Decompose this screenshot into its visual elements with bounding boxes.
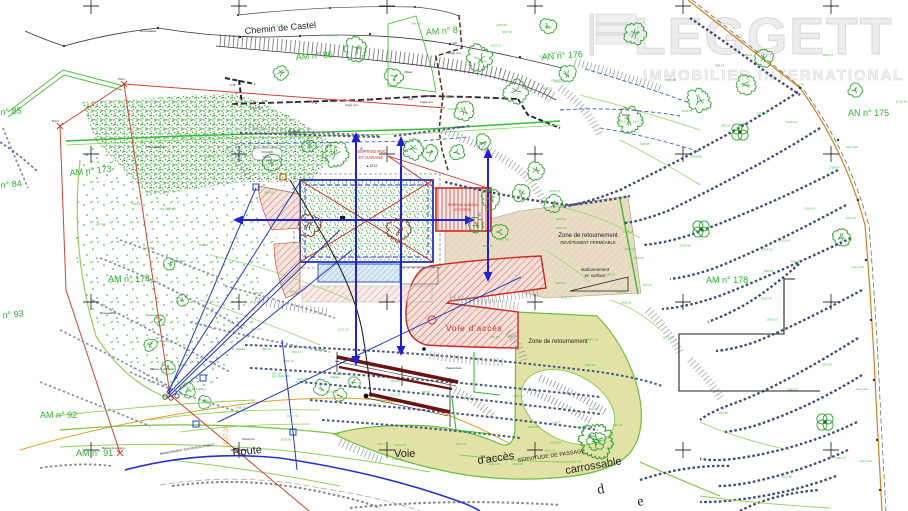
svg-text:Point: Point bbox=[52, 119, 59, 123]
svg-text:1002.04: 1002.04 bbox=[584, 363, 595, 367]
svg-text:Axe route: Axe route bbox=[852, 265, 864, 269]
svg-text:Cuprès: Cuprès bbox=[196, 387, 206, 391]
svg-text:Olivier: Olivier bbox=[588, 434, 597, 438]
svg-text:Cuprès: Cuprès bbox=[178, 363, 188, 367]
svg-text:Axe route: Axe route bbox=[860, 459, 872, 463]
svg-text:17.80: 17.80 bbox=[290, 130, 298, 134]
svg-text:1010.28: 1010.28 bbox=[489, 462, 500, 466]
svg-text:Angle mur: Angle mur bbox=[448, 51, 461, 55]
svg-text:COULOIR: COULOIR bbox=[261, 150, 273, 154]
svg-text:994.93: 994.93 bbox=[542, 87, 552, 91]
svg-text:AN n° 175: AN n° 175 bbox=[848, 108, 889, 118]
svg-text:Axe route: Axe route bbox=[856, 387, 868, 391]
svg-text:1002.85: 1002.85 bbox=[570, 460, 581, 464]
svg-text:1007.01: 1007.01 bbox=[327, 34, 338, 38]
svg-text:992.49: 992.49 bbox=[421, 390, 431, 394]
svg-text:1011.96: 1011.96 bbox=[633, 256, 644, 260]
svg-text:1018.43: 1018.43 bbox=[804, 206, 815, 210]
svg-text:1007.08: 1007.08 bbox=[326, 390, 337, 394]
svg-text:1006.29: 1006.29 bbox=[574, 425, 585, 429]
svg-text:1003.29: 1003.29 bbox=[623, 230, 634, 234]
svg-text:Broussailles: Broussailles bbox=[140, 29, 157, 33]
svg-text:1002.97: 1002.97 bbox=[235, 405, 246, 409]
svg-text:1001.55: 1001.55 bbox=[682, 109, 693, 113]
svg-text:9.55: 9.55 bbox=[262, 99, 268, 103]
svg-text:EMPRISE RDC: EMPRISE RDC bbox=[357, 149, 386, 154]
svg-text:1002.15: 1002.15 bbox=[338, 328, 349, 332]
svg-text:AM n° 92: AM n° 92 bbox=[40, 410, 77, 420]
svg-text:1009.39: 1009.39 bbox=[680, 244, 691, 248]
svg-text:993.00: 993.00 bbox=[391, 379, 401, 383]
svg-text:995.97: 995.97 bbox=[618, 120, 628, 124]
svg-text:Angle mur: Angle mur bbox=[250, 106, 263, 110]
svg-text:1017.77: 1017.77 bbox=[377, 442, 388, 446]
svg-text:1003.90: 1003.90 bbox=[279, 374, 290, 378]
svg-text:Cuprès: Cuprès bbox=[160, 339, 170, 343]
svg-text:1012.59: 1012.59 bbox=[252, 291, 263, 295]
svg-text:991.09: 991.09 bbox=[616, 290, 626, 294]
svg-text:1018.18: 1018.18 bbox=[896, 99, 907, 103]
svg-text:996.58: 996.58 bbox=[167, 207, 177, 211]
svg-text:7.05: 7.05 bbox=[368, 98, 374, 102]
svg-text:1006.87: 1006.87 bbox=[829, 166, 840, 170]
svg-text:993.59: 993.59 bbox=[719, 411, 729, 415]
svg-text:998.40: 998.40 bbox=[613, 423, 623, 427]
svg-text:999.11: 999.11 bbox=[791, 260, 800, 264]
svg-text:1008.10: 1008.10 bbox=[131, 202, 142, 206]
svg-text:1011.03: 1011.03 bbox=[483, 244, 494, 248]
svg-text:7.11: 7.11 bbox=[312, 101, 318, 105]
svg-text:1013.84: 1013.84 bbox=[781, 474, 792, 478]
svg-text:1005.03: 1005.03 bbox=[556, 226, 567, 230]
svg-text:5.18: 5.18 bbox=[230, 83, 236, 87]
svg-text:1013.97: 1013.97 bbox=[496, 23, 507, 27]
svg-text:1005.32: 1005.32 bbox=[204, 154, 215, 158]
svg-text:1013.38: 1013.38 bbox=[297, 377, 308, 381]
svg-text:en surface: en surface bbox=[584, 273, 606, 278]
svg-text:1014.14: 1014.14 bbox=[756, 111, 767, 115]
svg-text:992.12: 992.12 bbox=[371, 403, 381, 407]
svg-text:Zone de retournement: Zone de retournement bbox=[558, 233, 618, 239]
svg-text:991.14: 991.14 bbox=[643, 283, 653, 287]
svg-text:1013.76: 1013.76 bbox=[455, 442, 466, 446]
svg-text:Axe route: Axe route bbox=[846, 145, 858, 149]
svg-text:999.24: 999.24 bbox=[715, 64, 725, 68]
svg-text:stationnement: stationnement bbox=[581, 267, 610, 272]
svg-text:998.95: 998.95 bbox=[640, 142, 650, 146]
svg-text:1004.85: 1004.85 bbox=[528, 425, 539, 429]
svg-text:996.58: 996.58 bbox=[262, 347, 272, 351]
svg-text:Olivier: Olivier bbox=[404, 70, 413, 74]
svg-text:998.69: 998.69 bbox=[764, 269, 774, 273]
svg-text:1010.16: 1010.16 bbox=[845, 216, 856, 220]
svg-text:Point: Point bbox=[118, 77, 125, 81]
svg-text:1004.95: 1004.95 bbox=[665, 78, 676, 82]
svg-text:992.63: 992.63 bbox=[721, 124, 731, 128]
svg-text:1005.47: 1005.47 bbox=[551, 420, 562, 424]
svg-text:1012.69: 1012.69 bbox=[448, 107, 459, 111]
svg-text:991.95: 991.95 bbox=[490, 335, 500, 339]
svg-text:1000.56: 1000.56 bbox=[333, 372, 344, 376]
svg-text:1007.91: 1007.91 bbox=[513, 394, 524, 398]
svg-text:Cuprès: Cuprès bbox=[148, 313, 158, 317]
svg-text:990.41: 990.41 bbox=[411, 21, 421, 25]
svg-text:1005.88: 1005.88 bbox=[779, 239, 790, 243]
svg-text:Cuprès: Cuprès bbox=[176, 259, 186, 263]
svg-text:1005.42: 1005.42 bbox=[624, 247, 635, 251]
svg-text:991.86: 991.86 bbox=[795, 83, 805, 87]
svg-text:B: B bbox=[405, 148, 408, 153]
svg-text:1009.15: 1009.15 bbox=[395, 443, 406, 447]
svg-text:1017.48: 1017.48 bbox=[663, 335, 674, 339]
svg-text:Cuprès: Cuprès bbox=[236, 347, 246, 351]
svg-text:ENTERRE: ENTERRE bbox=[455, 208, 472, 212]
svg-text:Paquet bois: Paquet bois bbox=[446, 366, 462, 370]
svg-text:17.87: 17.87 bbox=[455, 125, 463, 129]
svg-text:992.46: 992.46 bbox=[446, 95, 456, 99]
svg-text:Angle mur: Angle mur bbox=[420, 100, 433, 104]
svg-text:1013.14: 1013.14 bbox=[550, 441, 561, 445]
svg-text:1003.03: 1003.03 bbox=[587, 338, 598, 342]
svg-text:999.61: 999.61 bbox=[743, 53, 753, 57]
svg-text:1018.31: 1018.31 bbox=[762, 248, 773, 252]
svg-text:Angle mur: Angle mur bbox=[345, 103, 358, 107]
svg-text:1016.09: 1016.09 bbox=[507, 334, 518, 338]
svg-text:Broussailles: Broussailles bbox=[148, 145, 165, 149]
svg-text:1016.24: 1016.24 bbox=[272, 24, 283, 28]
svg-text:1017.64: 1017.64 bbox=[381, 401, 392, 405]
svg-text:1002.20: 1002.20 bbox=[561, 296, 572, 300]
svg-text:1014.36: 1014.36 bbox=[512, 462, 523, 466]
svg-text:▲ 5T12: ▲ 5T12 bbox=[366, 164, 378, 168]
svg-text:996.73: 996.73 bbox=[292, 350, 302, 354]
svg-text:1013.18: 1013.18 bbox=[485, 188, 496, 192]
svg-text:1006.62: 1006.62 bbox=[787, 388, 798, 392]
svg-text:997.08: 997.08 bbox=[822, 363, 832, 367]
svg-text:Broussailles: Broussailles bbox=[100, 311, 117, 315]
svg-text:993.80: 993.80 bbox=[499, 237, 509, 241]
svg-text:1002.82: 1002.82 bbox=[390, 392, 401, 396]
svg-text:997.53: 997.53 bbox=[604, 462, 614, 466]
svg-text:AM n° 174: AM n° 174 bbox=[108, 274, 150, 284]
svg-text:1003.23: 1003.23 bbox=[766, 317, 777, 321]
svg-text:1007.26: 1007.26 bbox=[223, 424, 230, 448]
svg-text:1006.07: 1006.07 bbox=[822, 53, 833, 57]
svg-text:AM n° 178: AM n° 178 bbox=[706, 275, 748, 285]
svg-text:994.87: 994.87 bbox=[606, 272, 616, 276]
svg-text:AM n° 91: AM n° 91 bbox=[76, 448, 113, 458]
svg-text:1001.64: 1001.64 bbox=[551, 51, 562, 55]
svg-text:Voie d'accès: Voie d'accès bbox=[446, 324, 503, 333]
svg-text:EMPRISE GARAGE: EMPRISE GARAGE bbox=[448, 203, 479, 207]
svg-text:995.18: 995.18 bbox=[478, 60, 488, 64]
svg-text:1000.60: 1000.60 bbox=[620, 301, 631, 305]
svg-text:IMMOBILIER INTERNATIONAL: IMMOBILIER INTERNATIONAL bbox=[643, 67, 904, 84]
svg-text:2.97: 2.97 bbox=[408, 97, 414, 101]
svg-text:990.84: 990.84 bbox=[199, 243, 209, 247]
svg-text:1001.34: 1001.34 bbox=[283, 359, 294, 363]
svg-text:1010.34: 1010.34 bbox=[786, 120, 797, 124]
svg-text:1008.88: 1008.88 bbox=[691, 154, 702, 158]
svg-text:1013.22: 1013.22 bbox=[490, 44, 501, 48]
svg-text:1005.27: 1005.27 bbox=[550, 79, 561, 83]
svg-text:Piquet fer: Piquet fer bbox=[242, 437, 255, 441]
svg-text:1018.06: 1018.06 bbox=[392, 457, 403, 461]
svg-text:994.39: 994.39 bbox=[252, 327, 262, 331]
svg-text:994.31: 994.31 bbox=[589, 407, 599, 411]
svg-text:REVÊTEMENT PERMÉABLE: REVÊTEMENT PERMÉABLE bbox=[560, 240, 616, 245]
svg-text:1003.75: 1003.75 bbox=[835, 456, 846, 460]
svg-text:1015.28: 1015.28 bbox=[538, 55, 549, 59]
svg-text:990.67: 990.67 bbox=[264, 191, 274, 195]
svg-text:Zone de retournement: Zone de retournement bbox=[528, 339, 588, 345]
svg-text:1015.38: 1015.38 bbox=[761, 297, 772, 301]
svg-text:1002.76: 1002.76 bbox=[550, 189, 561, 193]
svg-text:ET GARAGE: ET GARAGE bbox=[359, 155, 384, 160]
svg-text:994.84: 994.84 bbox=[145, 246, 155, 250]
svg-text:993.08: 993.08 bbox=[556, 281, 566, 285]
svg-text:1017.70: 1017.70 bbox=[287, 414, 298, 418]
svg-text:997.30: 997.30 bbox=[503, 30, 513, 34]
svg-text:4.97: 4.97 bbox=[452, 41, 458, 45]
svg-text:997.52: 997.52 bbox=[96, 222, 106, 226]
svg-text:1016.01: 1016.01 bbox=[544, 449, 555, 453]
svg-text:1018.80: 1018.80 bbox=[280, 437, 291, 441]
svg-text:999.86: 999.86 bbox=[316, 348, 326, 352]
svg-text:994.25: 994.25 bbox=[290, 290, 300, 294]
svg-text:998.03: 998.03 bbox=[557, 217, 567, 221]
svg-text:1012.28: 1012.28 bbox=[633, 119, 644, 123]
svg-text:Olivier: Olivier bbox=[622, 113, 631, 117]
